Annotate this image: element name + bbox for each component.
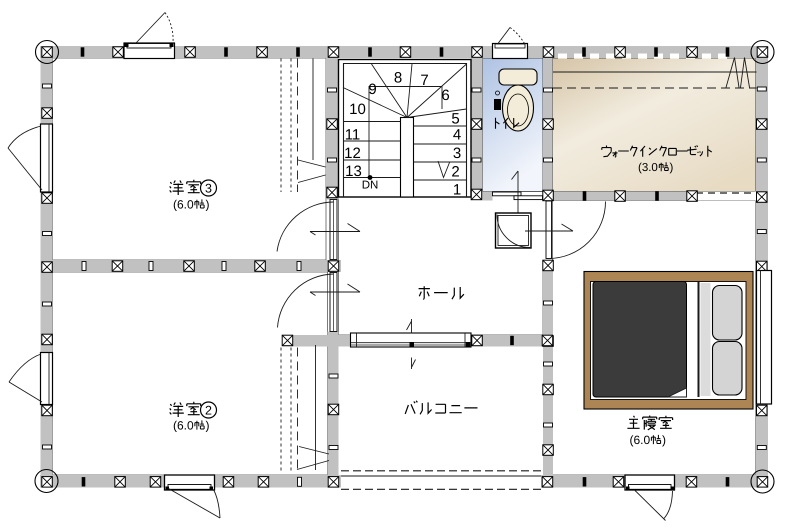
svg-text:): ) (206, 198, 210, 212)
svg-text:2: 2 (451, 163, 459, 180)
svg-text:11: 11 (345, 126, 361, 143)
svg-text:(6.0: (6.0 (173, 419, 194, 433)
svg-text:(6.0: (6.0 (173, 198, 194, 212)
svg-text:2: 2 (205, 404, 212, 418)
svg-text:5: 5 (451, 110, 459, 127)
svg-text:4: 4 (453, 126, 461, 143)
svg-text:8: 8 (394, 69, 402, 86)
svg-text:13: 13 (345, 163, 362, 180)
svg-text:(6.0: (6.0 (630, 433, 651, 447)
svg-text:): ) (206, 419, 210, 433)
svg-text:(3.0: (3.0 (638, 162, 658, 174)
svg-text:12: 12 (344, 145, 361, 162)
svg-text:DN: DN (362, 180, 379, 192)
svg-text:7: 7 (420, 72, 428, 89)
svg-text:1: 1 (453, 181, 461, 198)
svg-text:9: 9 (368, 81, 376, 98)
svg-text:6: 6 (441, 87, 449, 104)
svg-text:3: 3 (205, 182, 212, 196)
svg-text:10: 10 (349, 101, 366, 118)
svg-text:): ) (670, 162, 674, 174)
svg-text:3: 3 (453, 145, 461, 162)
svg-text:): ) (662, 433, 666, 447)
